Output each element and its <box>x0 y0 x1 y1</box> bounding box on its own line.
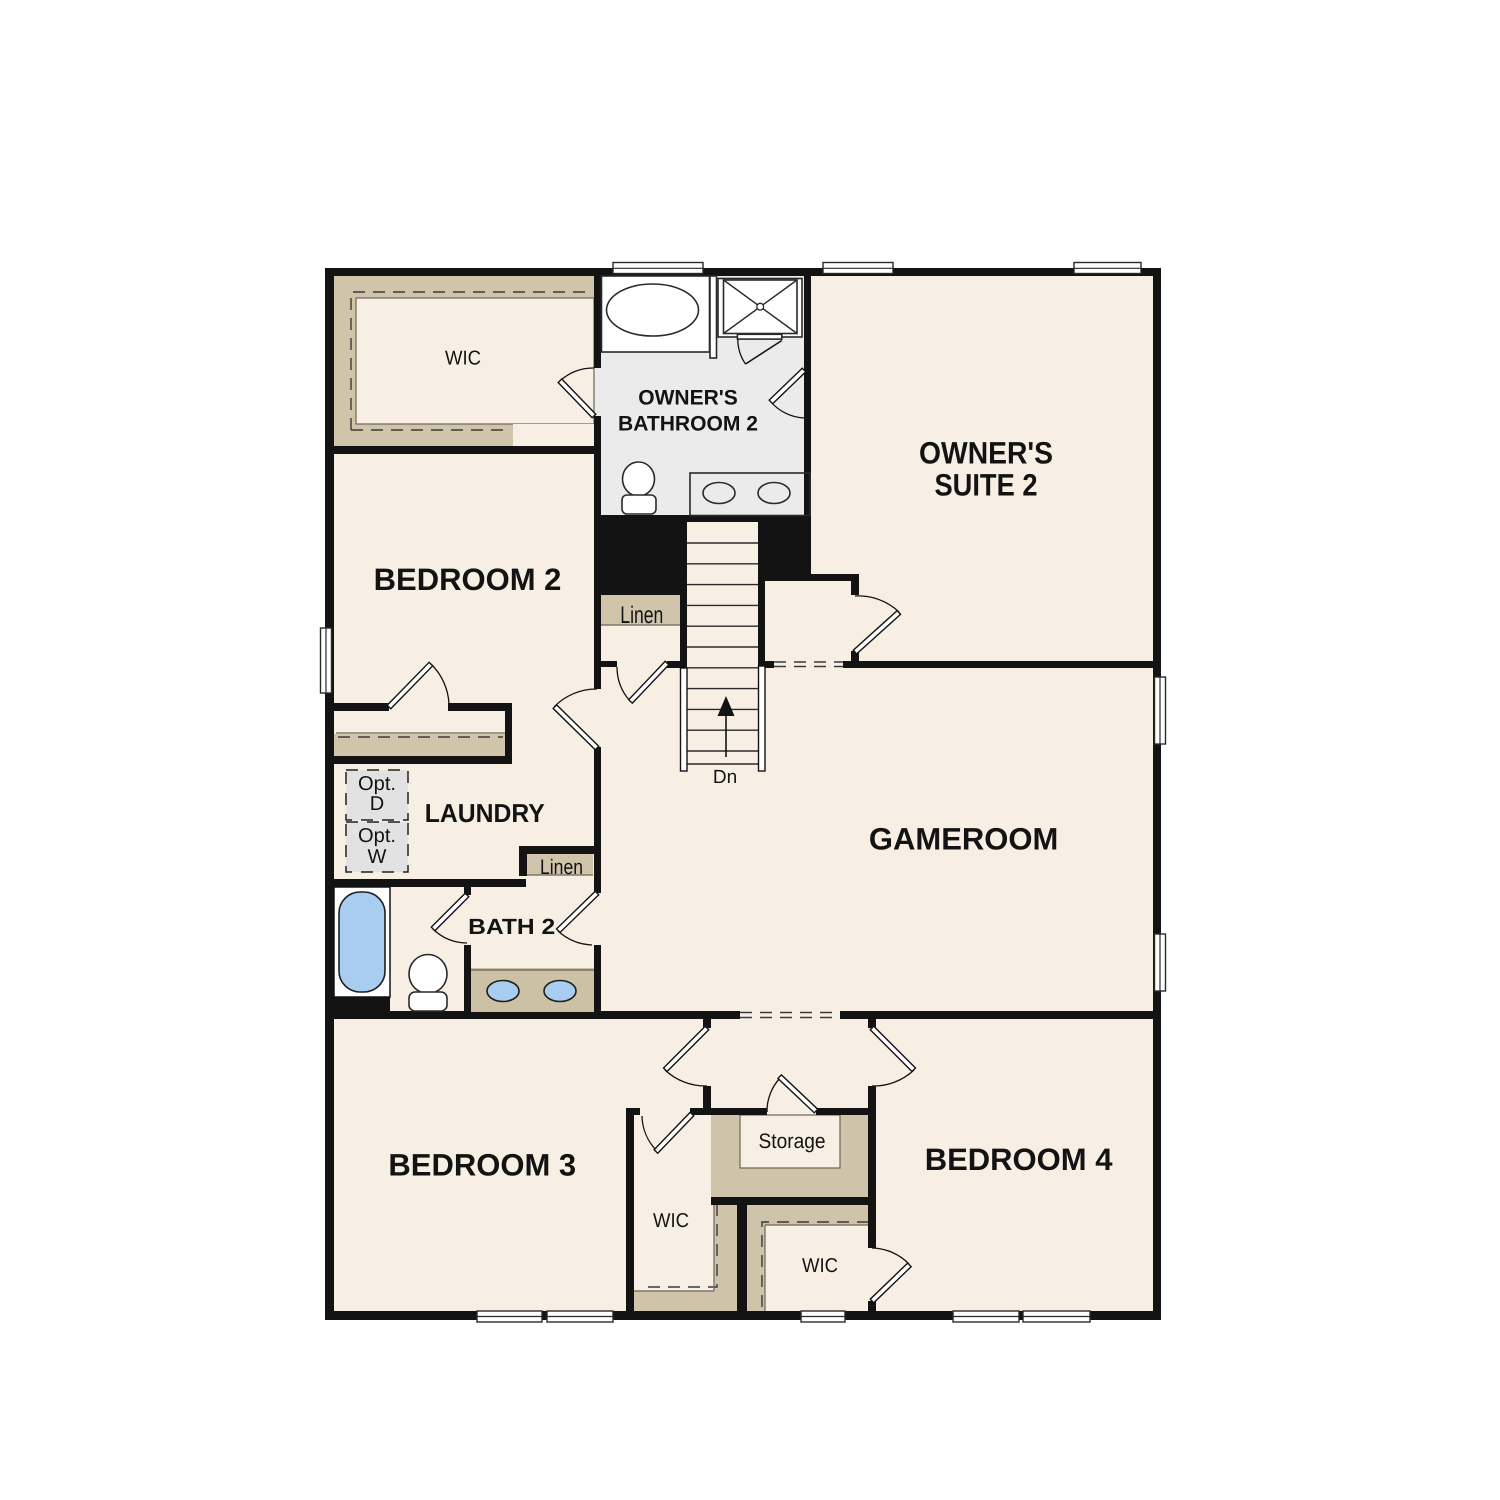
svg-text:LAUNDRY: LAUNDRY <box>425 798 545 828</box>
svg-text:BEDROOM 3: BEDROOM 3 <box>388 1148 576 1183</box>
svg-text:Opt.: Opt. <box>358 825 396 847</box>
svg-text:OWNER'S: OWNER'S <box>638 387 738 410</box>
svg-text:BATHROOM 2: BATHROOM 2 <box>618 413 758 436</box>
svg-text:BATH 2: BATH 2 <box>468 914 555 939</box>
svg-text:Storage: Storage <box>759 1130 826 1153</box>
svg-text:Opt.: Opt. <box>358 773 396 795</box>
svg-text:W: W <box>368 846 387 868</box>
svg-text:OWNER'S: OWNER'S <box>919 436 1053 471</box>
svg-text:WIC: WIC <box>653 1210 689 1232</box>
svg-text:WIC: WIC <box>445 348 481 370</box>
svg-text:Dn: Dn <box>713 767 737 788</box>
svg-text:SUITE 2: SUITE 2 <box>935 468 1038 503</box>
svg-text:BEDROOM 4: BEDROOM 4 <box>925 1142 1114 1177</box>
svg-text:Linen: Linen <box>540 856 583 879</box>
svg-text:D: D <box>370 793 384 815</box>
svg-text:WIC: WIC <box>802 1255 838 1277</box>
svg-text:BEDROOM 2: BEDROOM 2 <box>374 562 562 597</box>
svg-text:GAMEROOM: GAMEROOM <box>869 821 1058 856</box>
svg-text:Linen: Linen <box>620 602 663 629</box>
